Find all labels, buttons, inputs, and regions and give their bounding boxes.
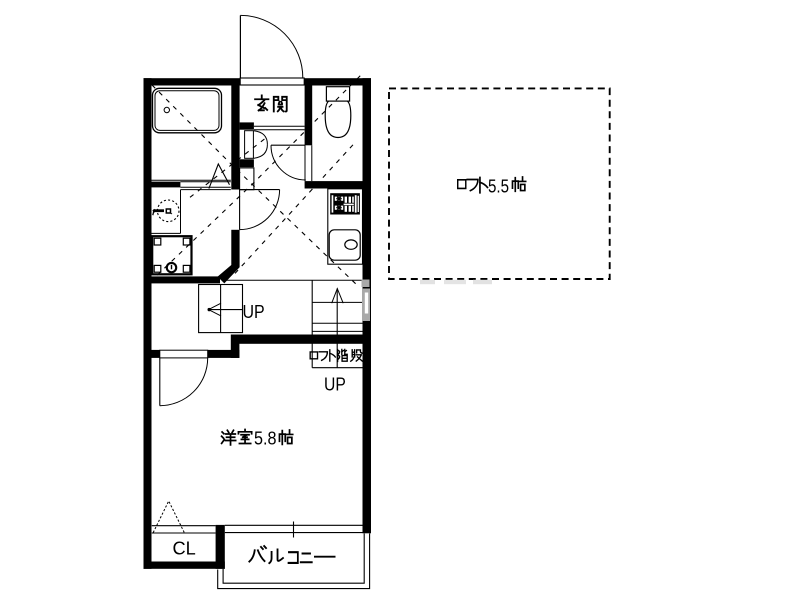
svg-text:5.8: 5.8 <box>254 429 277 449</box>
svg-text:UP: UP <box>243 301 265 322</box>
svg-text:5.5: 5.5 <box>488 176 509 197</box>
svg-text:UP: UP <box>324 373 346 394</box>
svg-text:CL: CL <box>173 537 196 558</box>
